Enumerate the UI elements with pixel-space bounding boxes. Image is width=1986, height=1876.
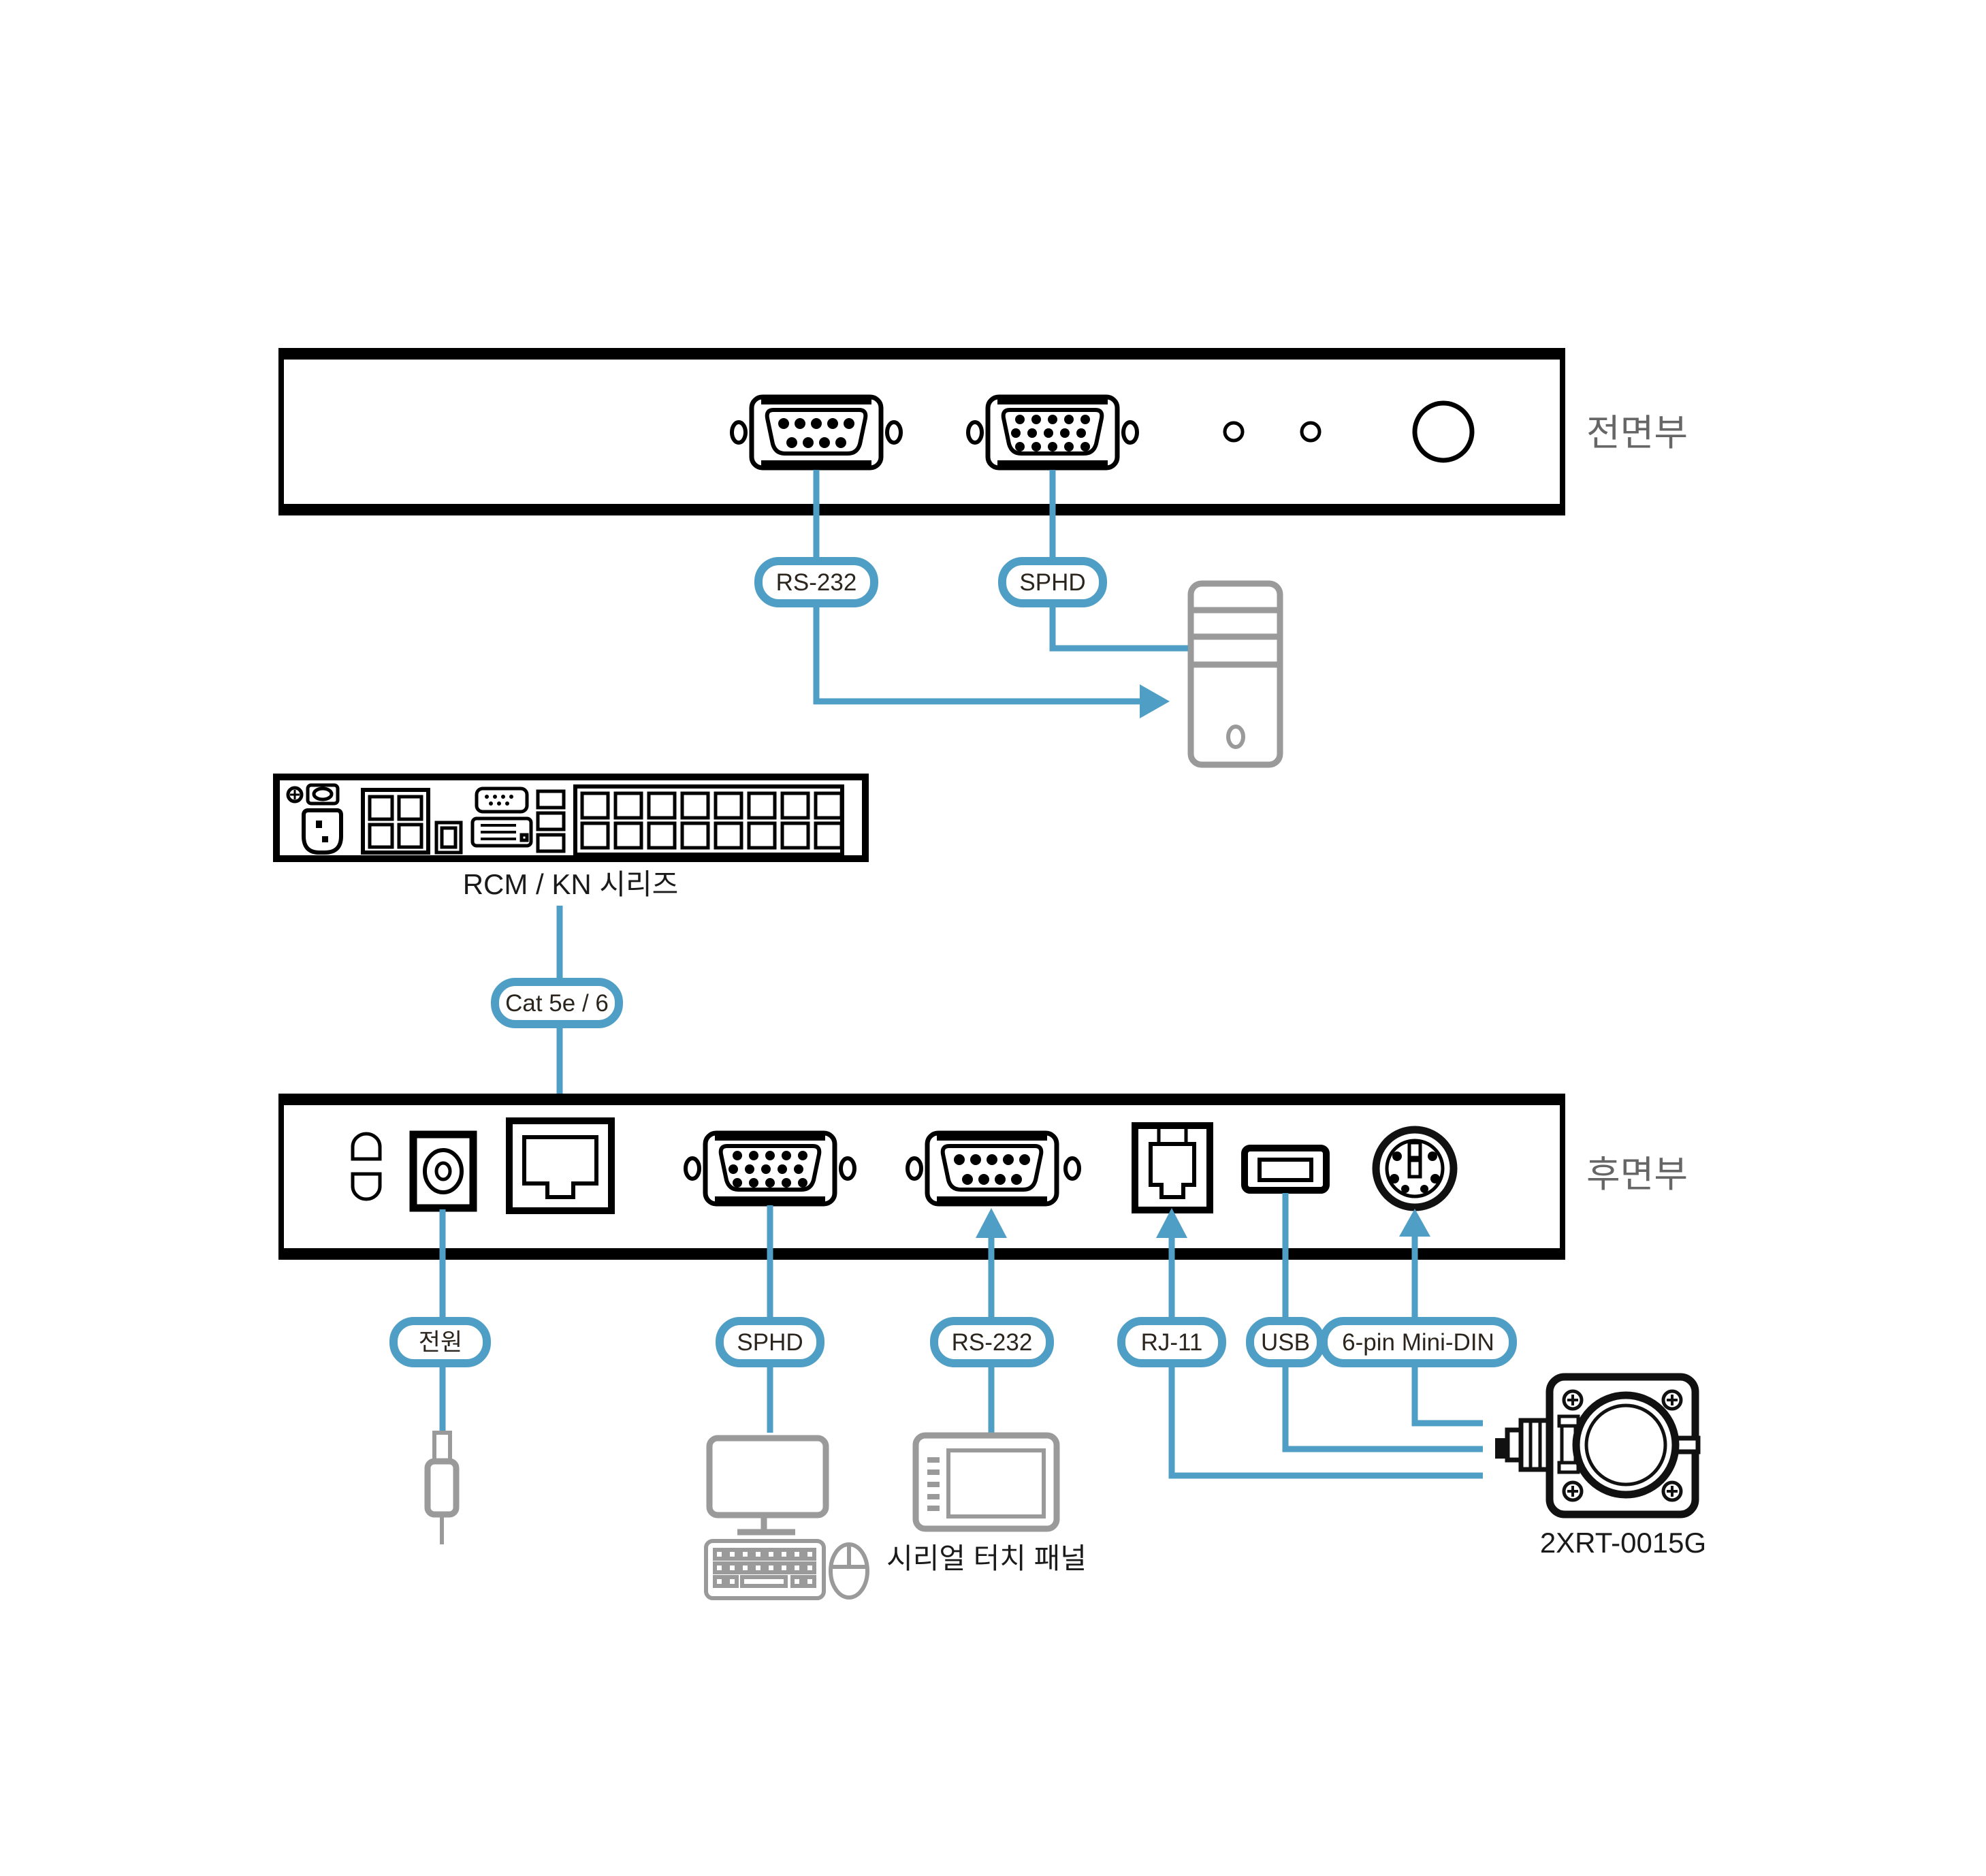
rear-sphd-pill: SPHD: [720, 1321, 820, 1363]
rcm-kn-caption: RCM / KN 시리즈: [463, 868, 679, 900]
svg-text:USB: USB: [1261, 1329, 1310, 1356]
usb-port-icon: [1245, 1148, 1326, 1190]
svg-text:RJ-11: RJ-11: [1141, 1329, 1203, 1356]
touch-panel-caption: 시리얼 터치 패널: [886, 1542, 1087, 1574]
keyboard-icon: [706, 1541, 824, 1598]
front-rs232-pill: RS-232: [758, 561, 874, 603]
cat5e6-pill: Cat 5e / 6: [495, 982, 619, 1024]
minidin-port-icon: [1376, 1130, 1454, 1207]
rear-panel-title: 후면부: [1586, 1154, 1688, 1195]
rj45-port-icon: [509, 1121, 611, 1211]
arrow-right-icon: [1140, 684, 1170, 718]
front-pushbutton: [1415, 403, 1472, 460]
svg-text:RS-232: RS-232: [952, 1329, 1033, 1356]
svg-text:RS-232: RS-232: [776, 569, 857, 596]
front-panel: [278, 348, 1565, 515]
sphd-vga-port-icon: [686, 1131, 854, 1206]
camera-caption: 2XRT-0015G: [1540, 1527, 1706, 1559]
computer-tower-icon: [1191, 584, 1280, 765]
rcm-kn-switch-icon: [276, 777, 865, 859]
monitor-icon: [709, 1438, 826, 1532]
rj11-pill: RJ-11: [1121, 1321, 1222, 1363]
rear-panel: [278, 1094, 1565, 1260]
mouse-icon: [831, 1544, 867, 1597]
svg-text:6-pin Mini-DIN: 6-pin Mini-DIN: [1342, 1329, 1494, 1356]
power-pill: 전원: [394, 1321, 487, 1363]
connection-diagram: 전면부 RS-232 SPHD: [0, 0, 1986, 1876]
dc-plug-icon: [428, 1433, 456, 1544]
front-sphd-pill: SPHD: [1002, 561, 1103, 603]
rj11-port-icon: [1135, 1126, 1210, 1210]
minidin-pill: 6-pin Mini-DIN: [1324, 1321, 1513, 1363]
svg-text:Cat 5e / 6: Cat 5e / 6: [505, 990, 609, 1017]
svg-text:SPHD: SPHD: [737, 1329, 803, 1356]
rear-rs232-pill: RS-232: [934, 1321, 1050, 1363]
dc-power-jack-icon: [413, 1134, 473, 1208]
touch-panel-icon: [916, 1435, 1057, 1529]
svg-text:SPHD: SPHD: [1019, 569, 1085, 596]
svg-text:전원: 전원: [419, 1329, 462, 1356]
sphd-vga-port-icon: [968, 395, 1137, 470]
db9-serial-port-icon: [908, 1131, 1079, 1206]
db9-serial-port-icon: [732, 395, 901, 470]
usb-pill: USB: [1250, 1321, 1321, 1363]
screw-icon: [288, 788, 302, 801]
front-panel-title: 전면부: [1586, 413, 1688, 454]
camera-unit-icon: [1495, 1377, 1698, 1514]
